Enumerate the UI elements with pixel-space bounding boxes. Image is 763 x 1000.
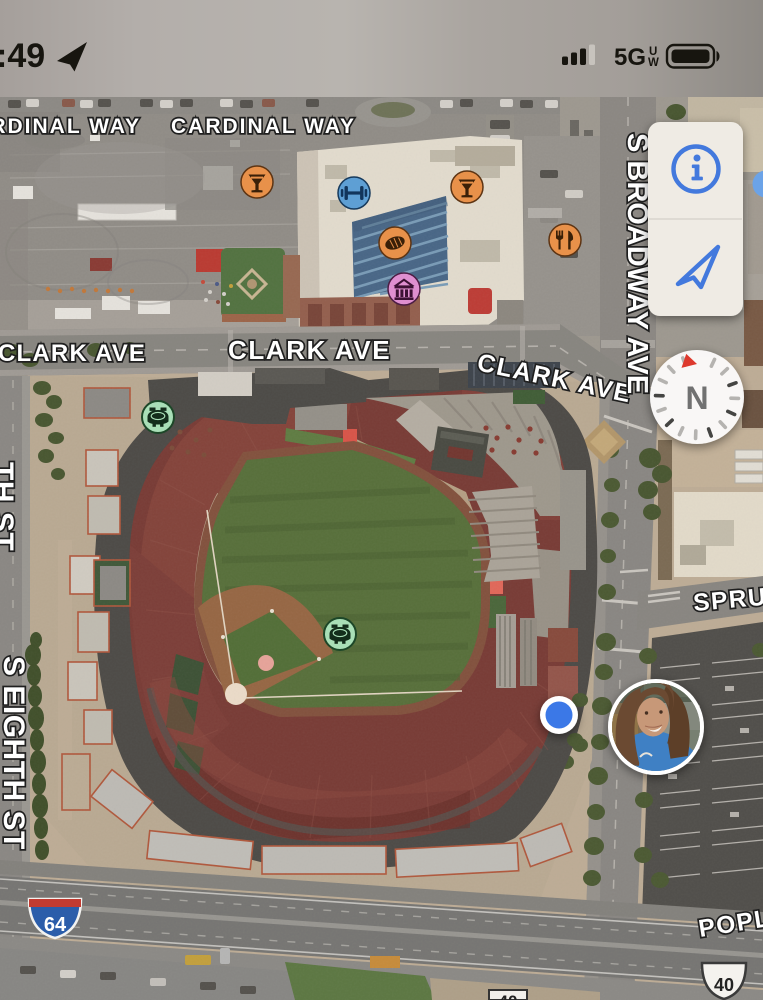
svg-text:S EIGHTH ST: S EIGHTH ST [0,656,30,850]
svg-text:CLARK AVE: CLARK AVE [228,335,391,365]
svg-text:40: 40 [714,975,734,995]
svg-text:64: 64 [44,914,67,936]
svg-text:N: N [685,380,708,416]
svg-text:CARDINAL WAY: CARDINAL WAY [171,115,356,138]
svg-text:TH ST: TH ST [0,462,19,551]
svg-text:5G: 5G [614,44,646,71]
svg-text:CLARK AVE: CLARK AVE [0,340,146,367]
svg-text::49: :49 [0,37,45,75]
svg-text:W: W [648,57,659,69]
svg-text:40: 40 [499,992,518,1000]
svg-text:CARDINAL WAY: CARDINAL WAY [0,115,141,138]
